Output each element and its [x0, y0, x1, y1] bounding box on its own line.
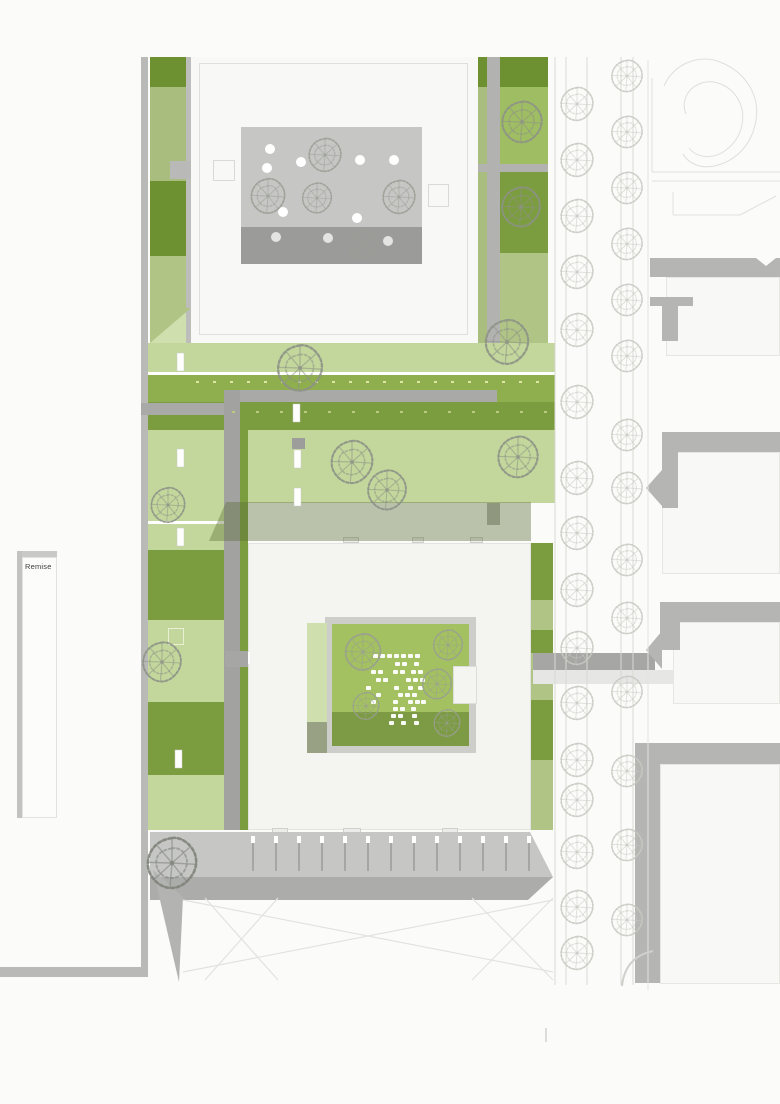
cross-path-west [141, 403, 233, 415]
east-strip-seg-3 [531, 700, 553, 760]
stall-tick [274, 836, 278, 843]
tree-icon [561, 687, 593, 720]
upper-annex-right [428, 184, 449, 207]
tree-icon [612, 228, 642, 259]
stall-tick [320, 836, 324, 843]
tree-icon [561, 256, 593, 289]
upper-courtyard [241, 127, 422, 227]
stall-tick [481, 836, 485, 843]
marking-line [472, 898, 553, 980]
remise-body [22, 557, 57, 818]
east-bldg-3-body [673, 622, 780, 704]
marking-line [183, 900, 553, 972]
street-cross-dark [533, 653, 655, 670]
hedge-strip [240, 402, 248, 830]
tree-icon [561, 462, 593, 495]
east-bldg-1-body [666, 277, 780, 356]
east-bldg-2-body [662, 452, 780, 574]
east-bldg-4-edge-v [635, 743, 660, 983]
site-plan-canvas: Remise [0, 0, 780, 1104]
stall-tick [297, 836, 301, 843]
tree-icon [612, 172, 642, 203]
tree-icon [561, 314, 593, 347]
left-strip-door [170, 161, 192, 179]
parking-stalls [251, 836, 531, 871]
west-path-foot [0, 967, 148, 977]
lawn-left-5 [148, 702, 224, 775]
lawn-left-3 [148, 550, 224, 620]
lawn-left-1 [148, 430, 224, 521]
courtyard-lawn [332, 624, 469, 712]
entry-walk-west [225, 651, 248, 667]
marking-line [183, 900, 553, 972]
east-bldg-4-body [660, 764, 780, 984]
courtyard-bed-light [307, 623, 327, 722]
left-strip-band-4 [150, 256, 191, 308]
tree-icon [612, 472, 642, 503]
east-walk-cross [478, 164, 548, 172]
marking-line [740, 196, 776, 215]
lawn-left-4 [148, 620, 224, 702]
mid-walk [224, 390, 240, 830]
east-block-band-3 [500, 172, 548, 253]
east-bldg-2-edge [662, 432, 780, 452]
driveway-curl-outer [664, 59, 757, 167]
east-strip-seg-1 [531, 543, 553, 600]
tree-icon [561, 144, 593, 177]
tree-icon [612, 284, 642, 315]
tree-icon [561, 744, 593, 777]
east-bldg-1-edge-3 [662, 306, 678, 341]
street-cross-light [533, 670, 673, 684]
lawn-left-6 [148, 775, 224, 830]
tree-icon [561, 836, 593, 869]
door-bottom-1 [272, 828, 288, 834]
tree-icon [561, 386, 593, 419]
courtyard-notch [453, 666, 477, 704]
lawn-left-2 [148, 524, 224, 550]
east-block-band-1 [500, 57, 548, 87]
south-tick [545, 1028, 547, 1042]
stall-tick [435, 836, 439, 843]
tree-icon [561, 88, 593, 121]
east-strip-seg-2 [531, 630, 553, 653]
tree-icon [612, 340, 642, 371]
remise-label: Remise [25, 562, 57, 571]
east-bldg-2-gable [646, 470, 662, 506]
cross-path-east [232, 390, 497, 402]
stall-tick [504, 836, 508, 843]
marking-line [205, 898, 278, 980]
east-bldg-1-edge-2 [650, 297, 693, 306]
tree-icon [612, 602, 642, 633]
stall-tick [412, 836, 416, 843]
tree-icon [561, 517, 593, 550]
door-bottom-2 [343, 828, 361, 834]
east-bldg-1-edge [650, 258, 780, 277]
left-strip-band-1 [150, 57, 191, 87]
south-wedge [153, 870, 183, 982]
tree-icon [612, 544, 642, 575]
stall-tick [366, 836, 370, 843]
tree-icon [561, 200, 593, 233]
tree-icon [148, 838, 196, 888]
courtyard-lawn-shade [332, 712, 469, 746]
lawn-band-top [148, 343, 555, 372]
stall-tick [458, 836, 462, 843]
east-bldg-3-edge-2 [660, 622, 680, 650]
planter-frame [168, 628, 184, 645]
stall-tick [389, 836, 393, 843]
marking-line [472, 898, 553, 980]
tree-icon [612, 419, 642, 450]
left-strip-band-3 [150, 181, 191, 256]
courtyard-bed-olive [307, 722, 327, 753]
door-top-1 [343, 537, 359, 543]
east-block-band-4 [500, 253, 548, 343]
door-bottom-3 [442, 828, 458, 834]
tree-icon [561, 784, 593, 817]
door-top-3 [470, 537, 483, 543]
upper-annex-left [213, 160, 235, 181]
stall-tick [251, 836, 255, 843]
marking-line [205, 898, 278, 980]
south-road [150, 877, 553, 900]
driveway-curl-inner [684, 82, 743, 157]
stall-tick [343, 836, 347, 843]
tree-icon [561, 574, 593, 607]
west-path [141, 57, 148, 977]
tree-icon [561, 937, 593, 970]
tree-icon [612, 60, 642, 91]
upper-courtyard-shade [241, 227, 422, 264]
east-bldg-4-edge-h [635, 743, 780, 764]
east-bldg-2-edge-2 [662, 452, 678, 508]
east-bldg-3-edge [660, 602, 780, 622]
building-shadow [209, 502, 531, 541]
east-block-band-2 [500, 87, 548, 164]
lawn-main [224, 430, 555, 503]
tree-icon [612, 116, 642, 147]
door-top-2 [412, 537, 424, 543]
left-strip-band-5 [150, 308, 191, 343]
stall-tick [527, 836, 531, 843]
tree-icon [561, 891, 593, 924]
parking-apron [150, 832, 553, 877]
